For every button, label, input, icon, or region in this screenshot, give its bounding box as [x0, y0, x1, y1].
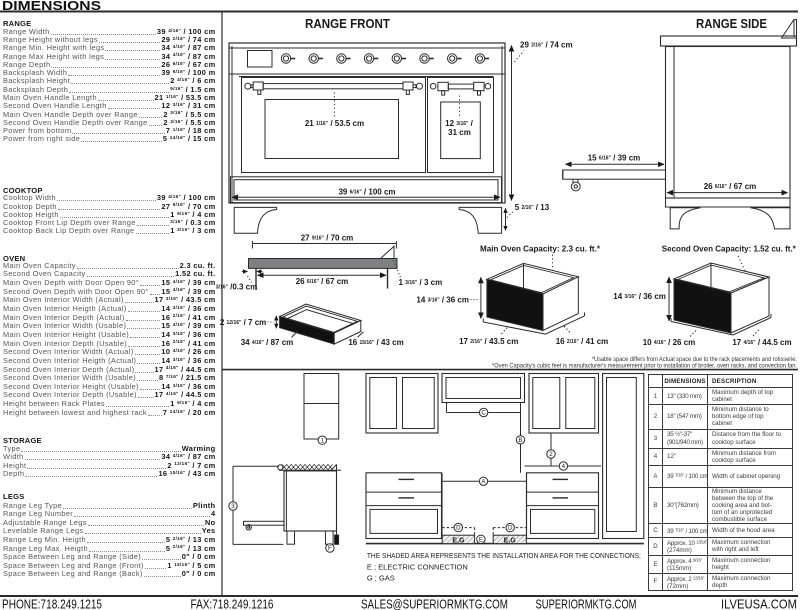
svg-text:14 3/16" / 36 cm: 14 3/16" / 36 cm	[613, 292, 666, 301]
svg-text:17 4/16" / 44.5 cm: 17 4/16" / 44.5 cm	[732, 338, 791, 347]
svg-text:5 2/16" / 13: 5 2/16" / 13	[515, 203, 550, 212]
svg-text:14 3/16" / 36 cm: 14 3/16" / 36 cm	[416, 296, 469, 305]
svg-text:10 4/16" / 26 cm: 10 4/16" / 26 cm	[643, 338, 696, 347]
svg-text:1: 1	[321, 437, 325, 444]
svg-text:34 4/16" / 87 cm: 34 4/16" / 87 cm	[241, 338, 294, 347]
svg-text:SALES@SUPERIORMKTG.COM: SALES@SUPERIORMKTG.COM	[361, 598, 508, 610]
svg-text:26 6/16" / 67 cm: 26 6/16" / 67 cm	[704, 182, 757, 191]
svg-text:15 6/16" / 39 cm: 15 6/16" / 39 cm	[588, 154, 641, 163]
svg-text:4: 4	[562, 463, 566, 470]
svg-text:THE SHADED AREA REPRESENTS THE: THE SHADED AREA REPRESENTS THE INSTALLAT…	[367, 551, 641, 560]
svg-text:2 12/16" / 7 cm: 2 12/16" / 7 cm	[220, 318, 266, 327]
svg-text:PHONE:718.249.1215: PHONE:718.249.1215	[2, 598, 102, 610]
svg-text:*Oven Capacity's cubic feet is: *Oven Capacity's cubic feet is manufactu…	[492, 362, 797, 369]
svg-text:17 2/16" / 43.5 cm: 17 2/16" / 43.5 cm	[459, 337, 518, 346]
svg-text:21 1/16" / 53.5 cm: 21 1/16" / 53.5 cm	[305, 119, 364, 128]
svg-text:F: F	[328, 545, 332, 552]
svg-text:16 2/16" / 41 cm: 16 2/16" / 41 cm	[556, 337, 609, 346]
svg-text:E,G: E,G	[504, 538, 517, 545]
svg-text:Main Oven Capacity: 2.3 cu. ft: Main Oven Capacity: 2.3 cu. ft.*	[480, 244, 601, 254]
svg-text:39 6/16" / 100 cm: 39 6/16" / 100 cm	[338, 188, 395, 197]
svg-text:12 3/16" /: 12 3/16" /	[445, 119, 473, 128]
svg-text:Second Oven Capacity: 1.52 cu.: Second Oven Capacity: 1.52 cu. ft.*	[662, 244, 797, 254]
svg-text:31 cm: 31 cm	[448, 128, 471, 137]
svg-text:26 6/16" / 67 cm: 26 6/16" / 67 cm	[296, 277, 349, 286]
svg-text:G ; GAS: G ; GAS	[367, 574, 395, 583]
svg-text:1 3/16" / 3 cm: 1 3/16" / 3 cm	[399, 278, 443, 287]
svg-text:ILVEUSA.COM: ILVEUSA.COM	[721, 598, 797, 610]
svg-text:E: E	[479, 536, 483, 543]
svg-text:FAX:718.249.1216: FAX:718.249.1216	[191, 598, 274, 610]
svg-text:RANGE FRONT: RANGE FRONT	[305, 16, 390, 31]
svg-text:B: B	[518, 437, 522, 444]
svg-text:3: 3	[231, 503, 235, 510]
svg-text:D: D	[456, 525, 461, 532]
svg-text:27 9/16" / 70 cm: 27 9/16" / 70 cm	[301, 234, 354, 243]
svg-text:RANGE SIDE: RANGE SIDE	[696, 16, 767, 31]
svg-text:E,G: E,G	[452, 538, 465, 545]
svg-text:E ; ELECTRIC CONNECTION: E ; ELECTRIC CONNECTION	[367, 563, 468, 572]
svg-text:SUPERIORMKTG.COM: SUPERIORMKTG.COM	[536, 598, 637, 610]
svg-text:D: D	[508, 525, 513, 532]
svg-text:29 2/16" / 74 cm: 29 2/16" / 74 cm	[520, 41, 573, 50]
svg-text:16 15/16" / 43 cm: 16 15/16" / 43 cm	[348, 338, 403, 347]
svg-text:2: 2	[549, 451, 553, 458]
svg-text:C: C	[481, 410, 486, 417]
